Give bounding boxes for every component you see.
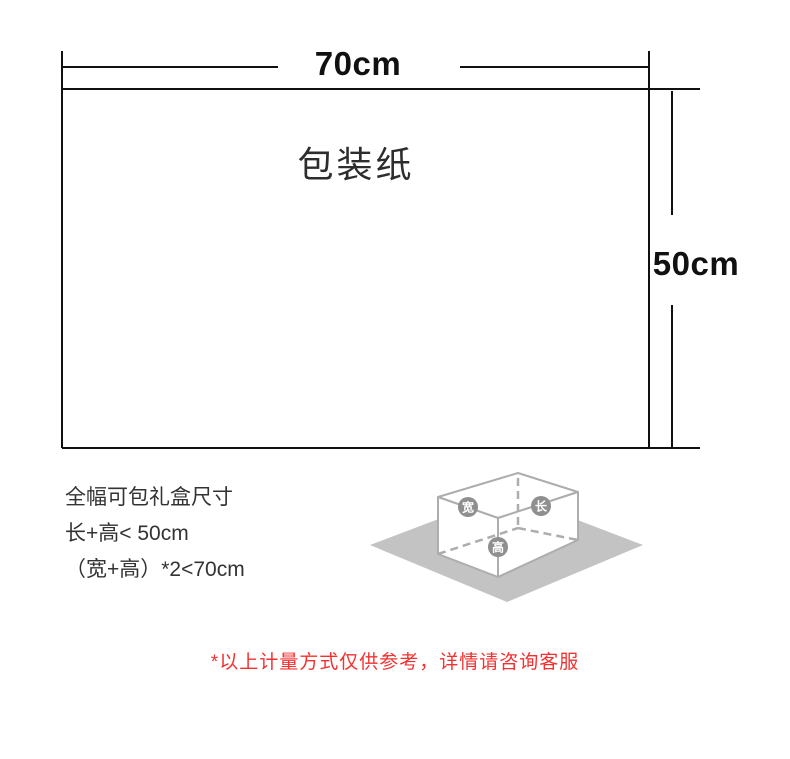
paper-title: 包装纸 [62, 145, 650, 185]
spec-rule-width: （宽+高）*2<70cm [65, 552, 245, 588]
paper-dimension-diagram [0, 0, 790, 759]
width-dimension-label: 70cm [308, 47, 408, 80]
wrap-size-specs: 全幅可包礼盒尺寸 长+高< 50cm （宽+高）*2<70cm [65, 480, 245, 588]
paper-outline [62, 51, 700, 448]
gift-box-illustration: 宽 长 高 [360, 455, 660, 615]
length-badge-label: 长 [535, 499, 548, 514]
disclaimer-note: *以上计量方式仅供参考，详情请咨询客服 [0, 651, 790, 676]
height-badge-label: 高 [492, 540, 504, 555]
product-size-infographic: 70cm 50cm 包装纸 全幅可包礼盒尺寸 长+高< 50cm （宽+高）*2… [0, 0, 790, 759]
spec-title: 全幅可包礼盒尺寸 [65, 480, 245, 516]
spec-rule-height: 长+高< 50cm [65, 516, 245, 552]
width-badge-label: 宽 [461, 500, 474, 515]
height-dimension-label: 50cm [650, 247, 742, 280]
